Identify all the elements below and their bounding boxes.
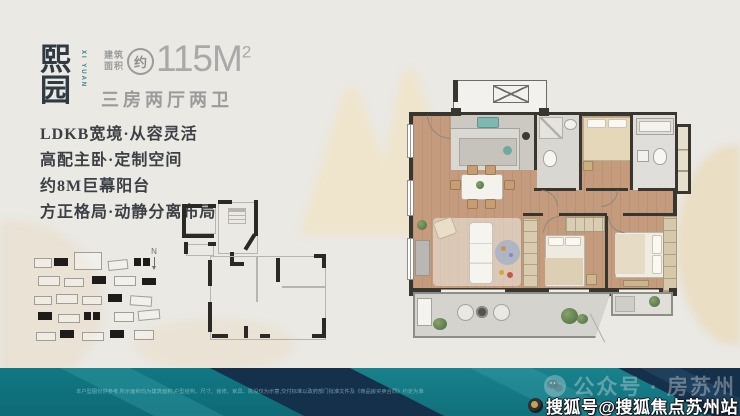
area-superscript: 2 xyxy=(242,43,250,62)
feature-line: 约8M巨幕阳台 xyxy=(40,174,216,200)
north-arrow-head xyxy=(152,266,156,270)
stove-icon xyxy=(522,132,530,140)
toy-icon xyxy=(499,270,504,275)
sketch-partition xyxy=(282,286,326,288)
nightstand xyxy=(583,161,593,171)
wall-segment xyxy=(254,200,258,236)
area-label: 建筑 面积 xyxy=(104,50,124,72)
wall-segment xyxy=(559,213,607,216)
sketch-partition xyxy=(256,256,258,302)
wall-segment xyxy=(451,108,461,116)
building-block xyxy=(92,276,106,284)
building-block xyxy=(58,314,80,323)
building-block xyxy=(54,258,68,266)
window-marker xyxy=(407,238,414,280)
toy-icon xyxy=(507,272,513,278)
closet-niche xyxy=(675,124,691,194)
pillow xyxy=(652,255,662,274)
wall-segment xyxy=(182,204,186,234)
chair xyxy=(504,180,515,190)
sink-bowl-icon xyxy=(503,146,512,155)
chair xyxy=(450,180,461,190)
bed-bench xyxy=(623,280,649,287)
building-block xyxy=(138,309,161,321)
window-marker xyxy=(407,124,414,158)
wall-segment xyxy=(623,213,677,216)
wardrobe xyxy=(565,217,605,232)
blanket xyxy=(545,258,583,285)
building-block xyxy=(84,312,91,320)
round-rug xyxy=(495,240,520,265)
plant-icon xyxy=(577,314,588,324)
building-block xyxy=(34,296,52,305)
project-name: 熙园 xyxy=(40,44,78,106)
chair xyxy=(467,165,478,175)
area-value: 115M2 xyxy=(156,38,250,80)
sohu-focus-logo-flame xyxy=(531,401,538,408)
building-block xyxy=(82,332,104,341)
shower-area xyxy=(539,117,563,139)
wall-segment xyxy=(208,302,212,332)
toilet-icon xyxy=(653,148,667,165)
sohu-focus-logo-icon xyxy=(528,398,543,413)
storage-shelf xyxy=(523,218,538,288)
washing-machine-icon xyxy=(476,306,488,318)
wall-segment xyxy=(208,204,216,208)
feature-line: LDKB宽境·从容灵活 xyxy=(40,122,216,148)
building-block xyxy=(108,294,122,302)
sohu-watermark-text: 搜狐号@搜狐焦点苏州站 xyxy=(546,393,738,416)
wall-segment xyxy=(630,114,633,190)
north-arrow-icon: N xyxy=(148,248,160,270)
building-block xyxy=(64,278,84,287)
wall-segment xyxy=(312,334,326,338)
wall-segment xyxy=(184,242,188,254)
building-block xyxy=(74,252,102,270)
sketch-room xyxy=(184,206,216,234)
plant-icon xyxy=(649,296,660,307)
wall-segment xyxy=(218,200,232,204)
bathroom-sink xyxy=(564,119,577,130)
building-block xyxy=(134,258,141,266)
plant-icon xyxy=(433,318,447,330)
window-marker xyxy=(407,180,414,216)
pillow xyxy=(565,237,581,246)
wall-segment xyxy=(322,254,326,268)
ac-platform-icon xyxy=(493,85,529,103)
planter-icon xyxy=(493,304,510,321)
building-block xyxy=(82,296,102,305)
plant-icon xyxy=(561,308,578,324)
nightstand xyxy=(586,274,597,285)
toy-icon xyxy=(501,246,506,251)
pillow xyxy=(608,119,627,128)
toy-icon xyxy=(509,253,513,257)
wall-segment xyxy=(212,334,228,338)
building-block xyxy=(56,294,78,304)
building-block xyxy=(130,295,153,307)
building-block xyxy=(38,312,52,320)
building-block xyxy=(110,330,124,338)
wall-segment xyxy=(605,216,608,290)
wall-segment xyxy=(579,114,582,190)
stair-icon xyxy=(228,208,246,224)
wardrobe xyxy=(663,216,677,292)
planter-icon xyxy=(457,304,474,321)
sketch-room xyxy=(210,256,326,340)
washer-cabinet xyxy=(417,298,432,326)
building-block xyxy=(60,330,74,338)
feature-line: 高配主卧·定制空间 xyxy=(40,148,216,174)
disclaimer-text: 本户型图仅供参考,所示面积均为建筑面积,户型结构、尺寸、装修、家具、陈设仅为示意… xyxy=(76,387,428,395)
plant-icon xyxy=(417,220,427,230)
wall-segment xyxy=(260,334,270,338)
building-block xyxy=(108,259,129,271)
pillow xyxy=(652,235,662,254)
wall-segment xyxy=(208,260,212,286)
blanket xyxy=(615,234,645,274)
area-number: 115M xyxy=(156,38,242,79)
floor-plan xyxy=(405,62,697,362)
project-name-vertical-seal: XI YUAN xyxy=(80,50,86,88)
building-block xyxy=(93,312,100,320)
building-block xyxy=(36,332,56,341)
bathroom-sink xyxy=(637,150,649,162)
key-plan-sketch xyxy=(182,200,330,340)
north-label: N xyxy=(148,248,160,256)
wall-segment xyxy=(208,242,216,246)
building-block xyxy=(38,276,60,286)
tv-console xyxy=(415,240,430,276)
building-block xyxy=(142,278,156,285)
chair xyxy=(485,199,496,209)
wall-segment xyxy=(534,114,537,170)
promo-image: 熙园 XI YUAN 建筑 面积 约 115M2 三房两厅两卫 LDKB宽境·从… xyxy=(0,0,740,416)
sofa xyxy=(469,222,493,284)
approx-badge-icon: 约 xyxy=(127,48,154,75)
bathtub-icon xyxy=(636,118,674,135)
wall-segment xyxy=(182,234,214,238)
wall-segment xyxy=(276,258,280,282)
wall-segment xyxy=(638,188,677,191)
pillow xyxy=(587,119,606,128)
north-arrow-shaft xyxy=(154,257,155,266)
wall-segment xyxy=(523,213,543,216)
wall-segment xyxy=(539,108,549,116)
wall-segment xyxy=(244,326,248,338)
unit-layout-label: 三房两厅两卫 xyxy=(101,86,233,112)
kitchen-sink xyxy=(477,117,499,128)
sohu-watermark: 搜狐号@搜狐焦点苏州站 xyxy=(528,393,738,416)
chair xyxy=(485,165,496,175)
balcony-mat xyxy=(615,296,635,312)
building-block xyxy=(34,258,52,268)
building-block xyxy=(114,276,136,286)
building-block xyxy=(134,330,154,340)
toilet-icon xyxy=(543,150,557,167)
pillow xyxy=(548,237,564,246)
table-plant-icon xyxy=(476,181,484,189)
chair xyxy=(467,199,478,209)
building-block xyxy=(114,312,134,322)
wall-segment xyxy=(453,80,458,102)
